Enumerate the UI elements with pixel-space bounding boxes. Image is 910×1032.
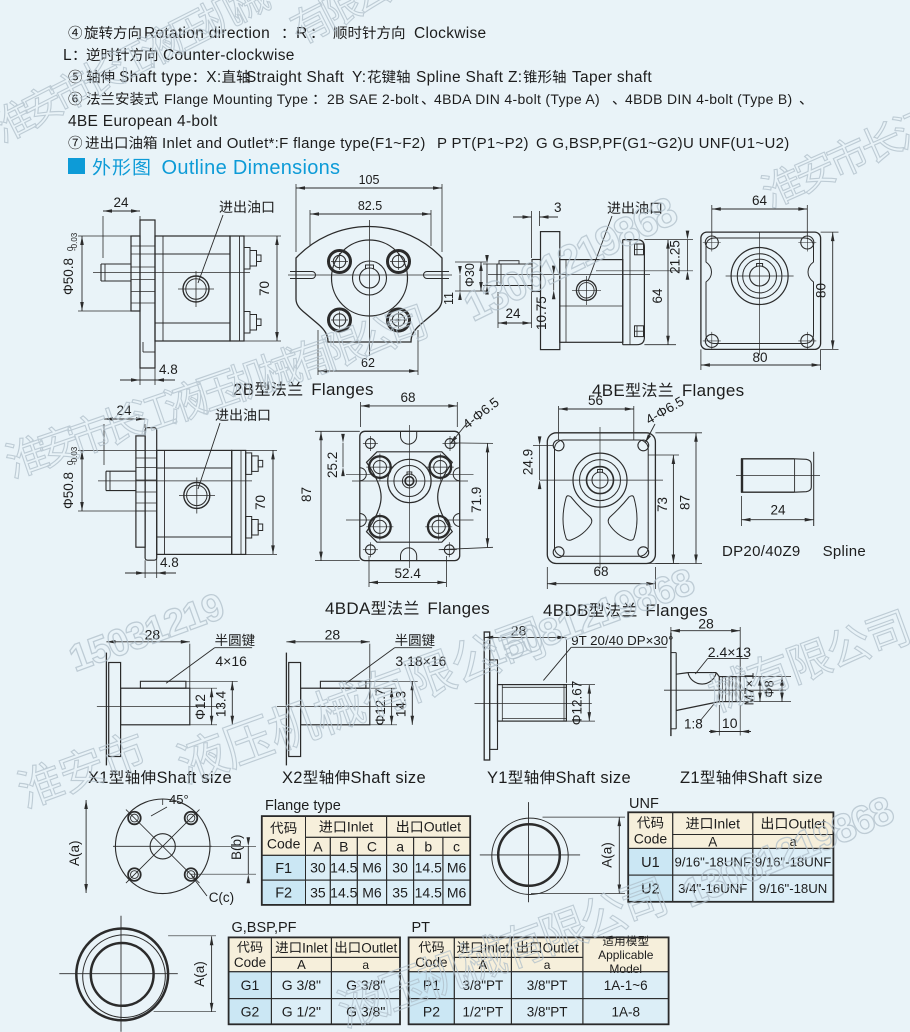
svg-text:105: 105 — [359, 173, 380, 187]
svg-text:80: 80 — [814, 283, 829, 298]
svg-text:Outline Dimensions: Outline Dimensions — [162, 157, 341, 179]
svg-text:1A-8: 1A-8 — [611, 1004, 640, 1019]
svg-text:Φ12.67: Φ12.67 — [570, 681, 585, 726]
svg-text:62: 62 — [361, 356, 375, 370]
svg-text:a: a — [362, 958, 369, 972]
svg-text:87: 87 — [678, 495, 693, 510]
svg-text:4.8: 4.8 — [160, 555, 179, 570]
svg-text:10.75: 10.75 — [534, 296, 549, 330]
svg-text:24.9: 24.9 — [521, 449, 536, 475]
svg-text:4.8: 4.8 — [159, 362, 178, 377]
svg-text:Y:: Y: — [352, 69, 366, 86]
svg-text:3/8"PT: 3/8"PT — [527, 978, 568, 993]
svg-text:Shaft size: Shaft size — [555, 769, 630, 787]
svg-text:Flanges: Flanges — [427, 599, 490, 618]
svg-text:Code: Code — [634, 830, 668, 846]
svg-text:71.9: 71.9 — [469, 487, 484, 513]
svg-text:Inlet: Inlet — [714, 815, 741, 831]
svg-text:Φ12: Φ12 — [193, 694, 208, 720]
svg-text:4BDA: 4BDA — [325, 599, 371, 618]
svg-text:U1: U1 — [641, 855, 660, 871]
svg-text:80: 80 — [752, 350, 767, 365]
svg-text:A(a): A(a) — [600, 842, 615, 868]
svg-text:Code: Code — [267, 836, 301, 852]
svg-text:C: C — [367, 838, 377, 854]
svg-text:C(c): C(c) — [209, 890, 235, 905]
svg-text:68: 68 — [593, 564, 608, 579]
svg-text:G 1/2": G 1/2" — [282, 1003, 321, 1019]
svg-text:Model: Model — [609, 962, 642, 976]
svg-text:Inlet: Inlet — [347, 819, 374, 835]
svg-text:87: 87 — [299, 487, 314, 502]
svg-text:Spline Shaft: Spline Shaft — [416, 69, 504, 86]
svg-text:a: a — [396, 838, 404, 854]
svg-text:UNF: UNF — [629, 796, 659, 812]
svg-text:U UNF(U1~U2): U UNF(U1~U2) — [683, 135, 790, 152]
svg-text:A(a): A(a) — [192, 961, 207, 987]
svg-text:4×16: 4×16 — [215, 653, 247, 669]
svg-text:68: 68 — [400, 390, 415, 405]
svg-text:11: 11 — [442, 292, 456, 305]
svg-text:A(a): A(a) — [67, 840, 82, 866]
svg-text:Straight Shaft: Straight Shaft — [246, 69, 345, 86]
svg-text:30: 30 — [310, 860, 326, 876]
svg-text:Z:: Z: — [508, 69, 522, 86]
svg-text:Outlet: Outlet — [361, 940, 397, 955]
svg-text:14.5: 14.5 — [330, 885, 357, 901]
svg-text:A: A — [708, 834, 717, 849]
svg-text:Shaft type: Shaft type — [119, 69, 192, 86]
svg-text:25.2: 25.2 — [325, 452, 340, 478]
svg-text:4BDB DIN 4-bolt (Type B): 4BDB DIN 4-bolt (Type B) — [625, 91, 792, 107]
svg-text:PT: PT — [412, 920, 431, 936]
svg-text:-0.03: -0.03 — [70, 232, 79, 251]
svg-text:1/2"PT: 1/2"PT — [462, 1004, 503, 1019]
svg-text:24: 24 — [116, 403, 132, 418]
svg-text:Outlet: Outlet — [424, 819, 461, 835]
svg-text:52.4: 52.4 — [395, 566, 422, 581]
svg-text:1:8: 1:8 — [684, 717, 703, 732]
svg-text:Flanges: Flanges — [682, 381, 745, 400]
svg-text:10: 10 — [722, 715, 738, 731]
svg-text:4BE European 4-bolt: 4BE European 4-bolt — [68, 113, 218, 130]
svg-text:35: 35 — [392, 885, 408, 901]
svg-text:X:: X: — [206, 69, 221, 86]
svg-text:70: 70 — [253, 495, 268, 510]
svg-text:Shaft size: Shaft size — [156, 769, 231, 787]
svg-text:70: 70 — [257, 281, 272, 296]
svg-text:30: 30 — [392, 860, 408, 876]
svg-text:M6: M6 — [447, 885, 467, 901]
svg-text:1A-1~6: 1A-1~6 — [604, 978, 648, 993]
svg-text:Code: Code — [234, 955, 266, 970]
svg-text:Z1: Z1 — [680, 769, 700, 787]
svg-text:G,BSP,PF: G,BSP,PF — [232, 920, 297, 936]
svg-text:Shaft size: Shaft size — [748, 769, 823, 787]
svg-text:24: 24 — [770, 503, 786, 518]
svg-text:B(b): B(b) — [229, 834, 244, 860]
svg-text:56: 56 — [588, 393, 603, 408]
svg-text:82.5: 82.5 — [358, 199, 382, 213]
svg-text:45°: 45° — [169, 792, 189, 807]
svg-text:Φ50.8: Φ50.8 — [61, 472, 76, 509]
svg-text:14.5: 14.5 — [415, 885, 442, 901]
svg-text:DP20/40Z9: DP20/40Z9 — [722, 543, 801, 560]
svg-text:13.4: 13.4 — [214, 690, 229, 717]
svg-text:Shaft size: Shaft size — [350, 769, 425, 787]
svg-text:A: A — [297, 957, 306, 972]
svg-text:c: c — [453, 838, 460, 854]
svg-text:21.25: 21.25 — [668, 240, 683, 274]
svg-text:-0.03: -0.03 — [70, 446, 79, 465]
svg-text:Inlet: Inlet — [302, 940, 328, 955]
svg-text:Inlet and Outlet*:F flange typ: Inlet and Outlet*:F flange type(F1~F2) — [162, 135, 426, 152]
svg-text:A: A — [313, 838, 323, 854]
svg-text:X2: X2 — [282, 769, 303, 787]
svg-text:28: 28 — [698, 616, 714, 632]
svg-text:35: 35 — [310, 885, 326, 901]
svg-text:M6: M6 — [362, 885, 382, 901]
svg-text:4BDA DIN 4-bolt (Type A): 4BDA DIN 4-bolt (Type A) — [434, 91, 600, 107]
svg-text:G2: G2 — [241, 1003, 260, 1019]
svg-text:2.4×13: 2.4×13 — [708, 644, 751, 660]
svg-text:64: 64 — [650, 288, 665, 304]
svg-text:Flanges: Flanges — [311, 380, 374, 399]
svg-text:14.5: 14.5 — [330, 860, 357, 876]
svg-text:Applicable: Applicable — [598, 948, 654, 962]
svg-text:3/8"PT: 3/8"PT — [527, 1004, 568, 1019]
svg-text:M6: M6 — [447, 860, 467, 876]
svg-text:G G,BSP,PF(G1~G2): G G,BSP,PF(G1~G2) — [536, 135, 683, 152]
svg-text:28: 28 — [325, 627, 341, 643]
svg-text:Spline: Spline — [823, 543, 867, 560]
svg-text:B: B — [339, 838, 348, 854]
svg-text:G1: G1 — [241, 977, 260, 993]
svg-text:Taper shaft: Taper shaft — [572, 69, 652, 86]
svg-text:3: 3 — [554, 200, 562, 215]
svg-text:73: 73 — [655, 497, 670, 512]
svg-text:24: 24 — [113, 195, 129, 210]
svg-text:Y1: Y1 — [487, 769, 508, 787]
svg-text:Φ50.8: Φ50.8 — [61, 258, 76, 295]
svg-text:L: L — [63, 47, 72, 64]
svg-text:F2: F2 — [275, 886, 292, 902]
svg-text:b: b — [424, 838, 432, 854]
svg-text:P PT(P1~P2): P PT(P1~P2) — [437, 135, 529, 152]
svg-text:Flange type: Flange type — [265, 798, 341, 814]
svg-text:G 3/8": G 3/8" — [282, 977, 321, 993]
svg-text:M6: M6 — [362, 860, 382, 876]
svg-text:F1: F1 — [275, 861, 292, 877]
svg-text:Clockwise: Clockwise — [414, 25, 486, 42]
svg-text:14.5: 14.5 — [415, 860, 442, 876]
svg-text:2B SAE 2-bolt: 2B SAE 2-bolt — [327, 91, 419, 107]
svg-text:64: 64 — [752, 193, 768, 208]
svg-text:a: a — [544, 958, 551, 972]
svg-text:Flange Mounting Type: Flange Mounting Type — [164, 91, 308, 107]
svg-text:P2: P2 — [423, 1003, 440, 1019]
